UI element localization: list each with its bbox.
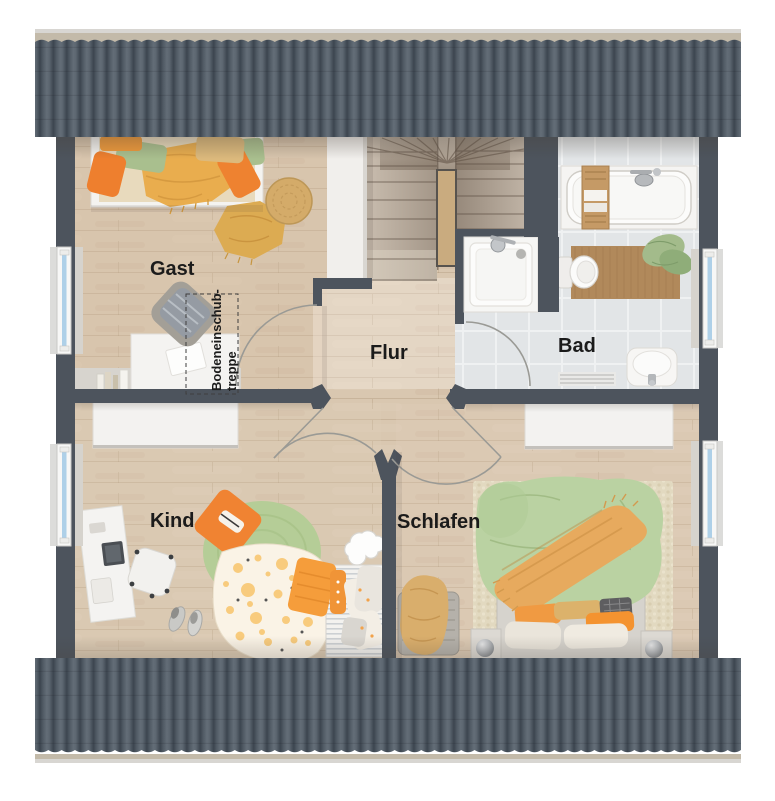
svg-text:Flur: Flur — [370, 342, 408, 364]
svg-text:Gast: Gast — [150, 258, 195, 280]
svg-text:Kind: Kind — [150, 510, 194, 532]
svg-text:Schlafen: Schlafen — [397, 511, 480, 533]
svg-text:Bodeneinschub-: Bodeneinschub- — [209, 289, 224, 391]
svg-text:Bad: Bad — [558, 335, 596, 357]
svg-text:treppe: treppe — [224, 351, 239, 391]
